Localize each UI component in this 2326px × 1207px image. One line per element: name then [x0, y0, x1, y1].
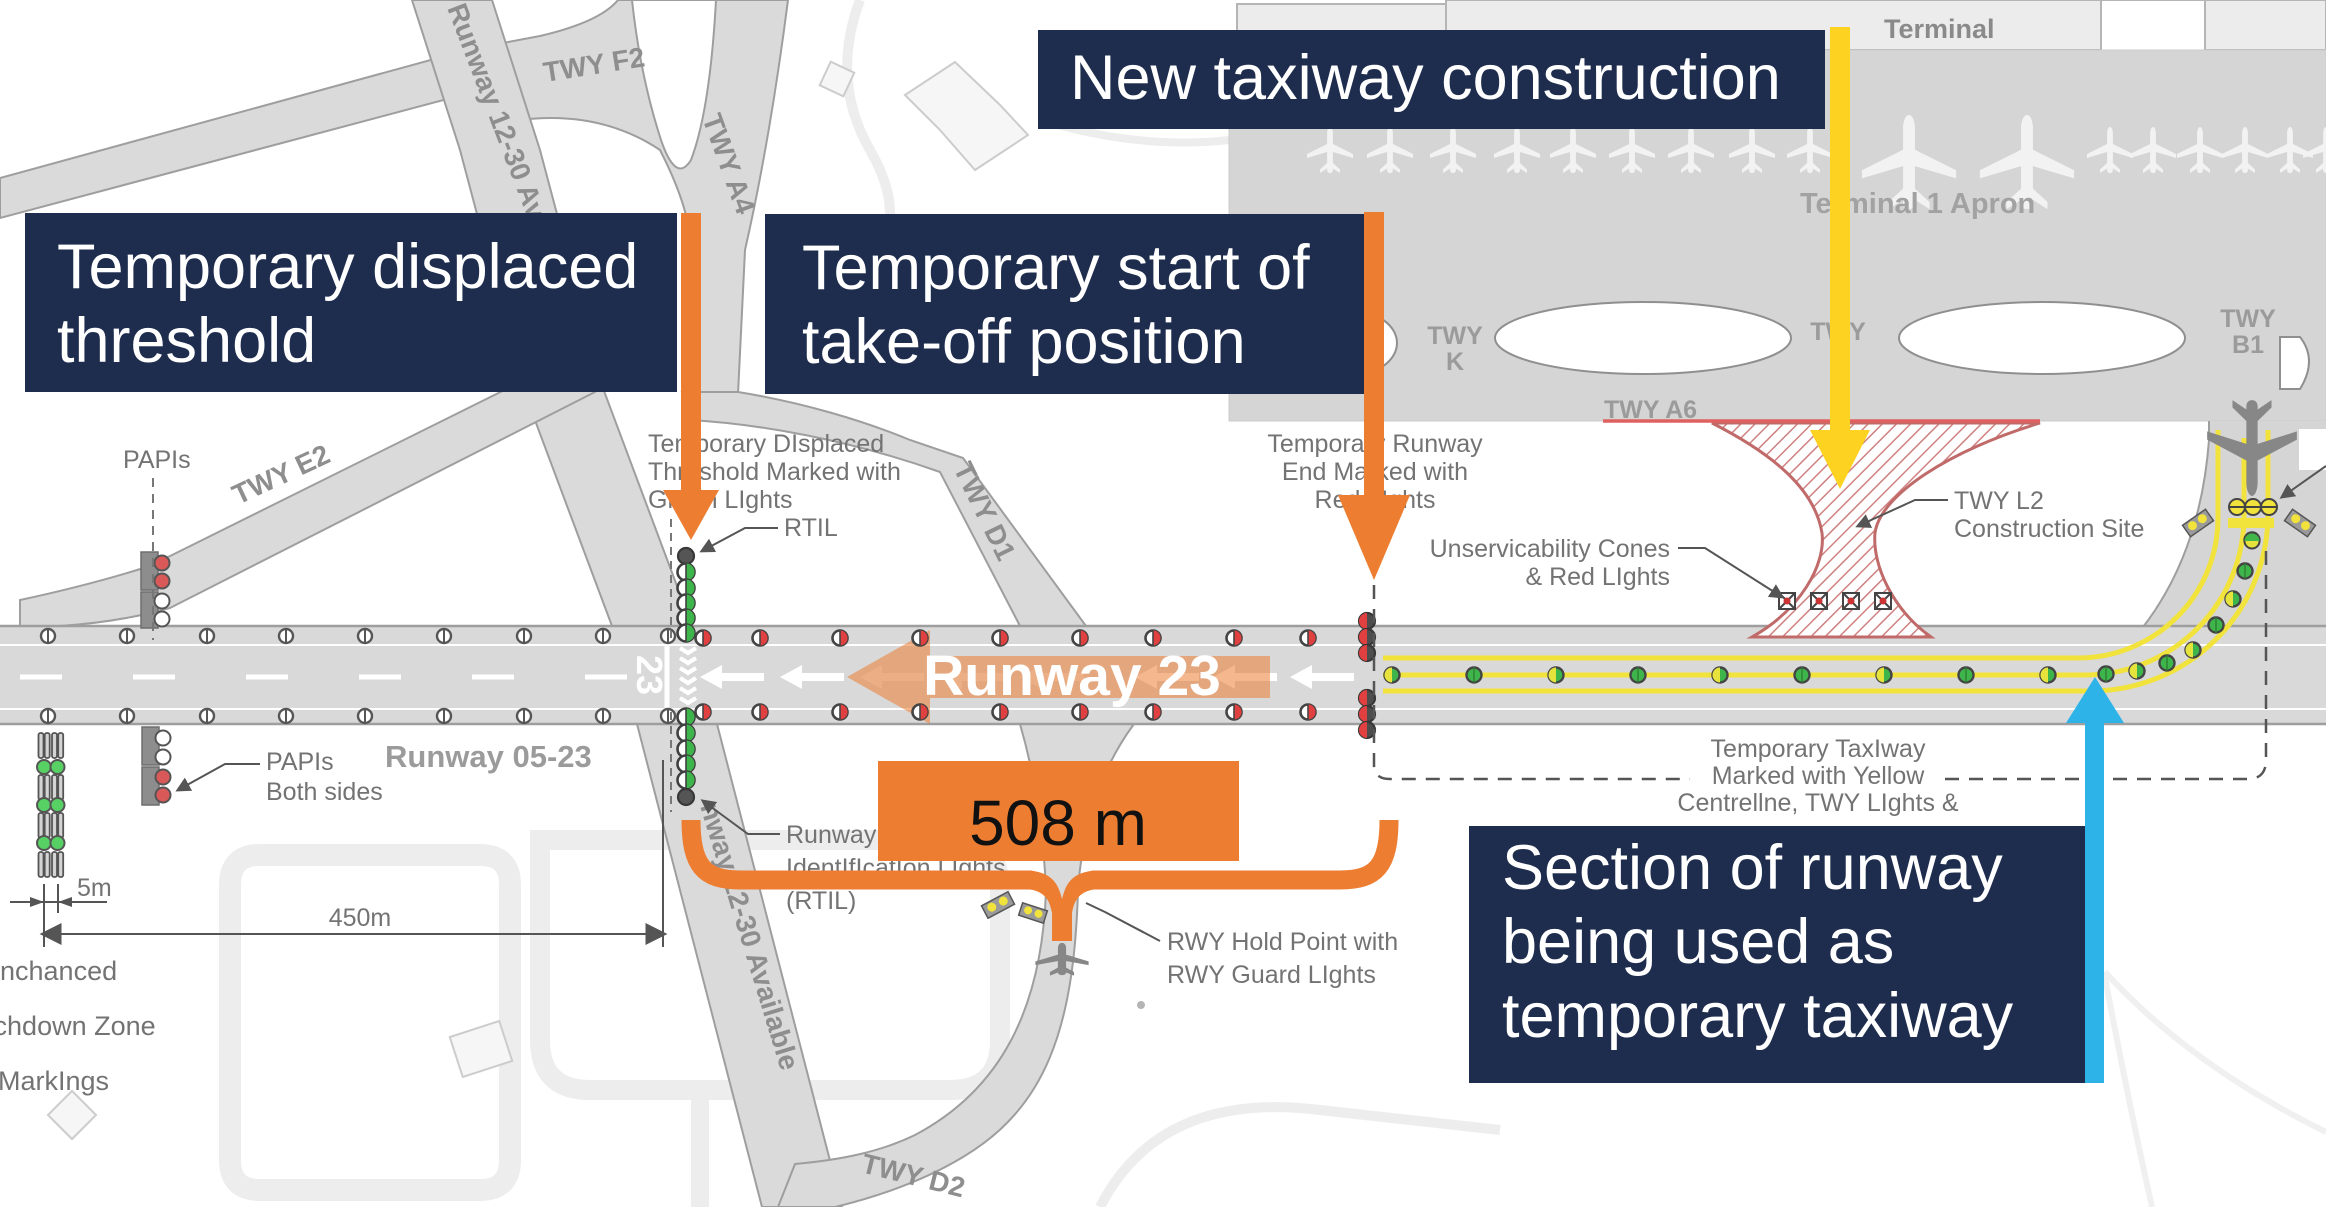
svg-text:Centrellne, TWY LIghts &: Centrellne, TWY LIghts & — [1677, 789, 1958, 817]
svg-text:508 m: 508 m — [969, 787, 1147, 859]
svg-text:Marked with Yellow: Marked with Yellow — [1712, 762, 1926, 790]
svg-text:(RTIL): (RTIL) — [786, 887, 856, 915]
svg-text:Runway 05-23: Runway 05-23 — [385, 739, 592, 774]
svg-text:TWY L2: TWY L2 — [1954, 487, 2044, 515]
svg-text:& Red LIghts: & Red LIghts — [1525, 563, 1670, 591]
svg-text:Enchanced: Enchanced — [0, 956, 117, 986]
svg-text:threshold: threshold — [57, 306, 316, 376]
svg-text:RTIL: RTIL — [784, 514, 838, 542]
svg-text:being used as: being used as — [1502, 907, 1894, 977]
svg-text:Section of runway: Section of runway — [1502, 833, 2003, 903]
svg-text:take-off position: take-off position — [802, 307, 1246, 377]
svg-text:TWY A6: TWY A6 — [1604, 396, 1697, 424]
svg-text:New taxiway construction: New taxiway construction — [1070, 43, 1781, 113]
svg-text:Temporary TaxIway: Temporary TaxIway — [1711, 735, 1926, 763]
svg-text:Construction Site: Construction Site — [1954, 515, 2144, 543]
svg-text:23: 23 — [629, 655, 670, 695]
svg-text:Temporary start of: Temporary start of — [802, 233, 1310, 303]
svg-text:5m: 5m — [77, 874, 112, 902]
svg-text:B1: B1 — [2232, 331, 2264, 359]
svg-text:Terminal: Terminal — [1884, 14, 1995, 44]
svg-text:temporary taxiway: temporary taxiway — [1502, 981, 2014, 1051]
svg-text:RWY Guard LIghts: RWY Guard LIghts — [1167, 961, 1376, 989]
svg-text:RWY Hold Point with: RWY Hold Point with — [1167, 928, 1398, 956]
svg-text:450m: 450m — [329, 904, 392, 932]
svg-text:Unservicability Cones: Unservicability Cones — [1430, 535, 1670, 563]
svg-text:PAPIs: PAPIs — [266, 748, 334, 776]
svg-text:Temporary displaced: Temporary displaced — [57, 232, 638, 302]
svg-text:PAPIs: PAPIs — [123, 446, 191, 474]
svg-text:Both sides: Both sides — [266, 778, 383, 806]
svg-text:Runway: Runway — [786, 821, 877, 849]
svg-text:MarkIngs: MarkIngs — [0, 1066, 109, 1096]
svg-text:K: K — [1446, 348, 1464, 376]
svg-text:TWY: TWY — [2220, 305, 2276, 333]
svg-text:Touchdown Zone: Touchdown Zone — [0, 1011, 156, 1041]
svg-text:TWY: TWY — [1427, 322, 1483, 350]
svg-text:Runway 23: Runway 23 — [923, 644, 1221, 708]
